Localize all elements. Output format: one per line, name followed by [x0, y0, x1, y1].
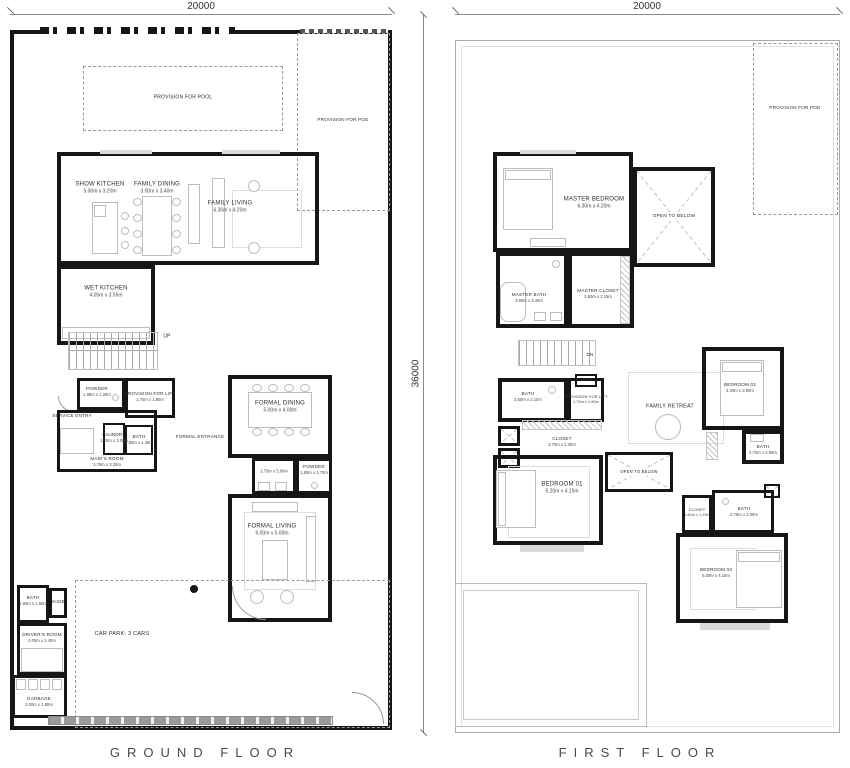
chair-icon: [133, 230, 142, 238]
tv-console-icon: [188, 184, 200, 244]
toilet-icon: [722, 498, 729, 505]
room-dims: 3.70m x 1.30m: [548, 442, 576, 447]
window: [520, 150, 576, 154]
room-dims: 6.30m x 4.20m: [208, 208, 253, 215]
room-dims: 1.80m x 1.25m: [684, 512, 710, 517]
provision-for-pool-label: PROVISION FOR POOL: [154, 95, 213, 102]
coffee-table-icon: [262, 540, 288, 580]
room-label: MASTER BEDROOM: [564, 196, 624, 204]
toilet-icon: [112, 394, 119, 401]
room-dims: 2.00m x 1.60m: [25, 702, 53, 707]
open-to-below-label: OPEN TO BELOW: [620, 469, 658, 475]
family-retreat-label: FAMILY RETREAT: [646, 403, 694, 410]
height-dimension-line: [423, 14, 424, 733]
height-dimension-label: 36000: [411, 354, 422, 394]
pillow-icon: [505, 170, 551, 180]
shower-unit-icon: [498, 426, 520, 446]
room-dims: 5.20m x 4.15m: [541, 489, 582, 496]
car-park-area: [75, 580, 390, 728]
fence-pattern: [40, 27, 235, 34]
provision-for-pod-label: PROVISION FOR POD: [317, 117, 368, 123]
chair-icon: [284, 428, 294, 436]
dimension-tick: [420, 729, 427, 736]
first-width-dimension-label: 20000: [633, 1, 661, 12]
provision-for-pod-label: PROVISION FOR POD: [769, 105, 820, 111]
chair-icon: [172, 230, 181, 238]
sofa-icon: [252, 502, 298, 512]
sink-icon: [534, 312, 546, 321]
bin-icon: [28, 679, 38, 690]
room-dims: 1.55m x 1.45m: [125, 440, 153, 445]
room-dims: 4.00m x 3.90m: [724, 388, 756, 393]
armchair-icon: [248, 180, 260, 192]
bin-icon: [52, 679, 62, 690]
room-dims: 3.80m x 3.40m: [512, 298, 547, 303]
ground-floor-title: GROUND FLOOR: [110, 745, 300, 760]
sink-icon: [550, 312, 562, 321]
room-dims: 3.50m x 2.10m: [514, 397, 542, 402]
gate-icon: [48, 716, 333, 725]
wardrobe-hatch-icon: [620, 256, 630, 324]
chair-icon: [172, 214, 181, 222]
chair-icon: [133, 198, 142, 206]
room-dims: 1.90m x 1.60m: [19, 601, 47, 606]
room-dims: 2.75m x 2.00m: [730, 512, 758, 517]
room-dims: 3.00m x 3.40m: [134, 189, 180, 196]
toilet-icon: [552, 260, 560, 268]
sink-icon: [94, 205, 106, 217]
stairs-dn-label: DN: [586, 352, 593, 358]
balcony-strip: [700, 623, 770, 630]
provision-for-pod-area: [753, 43, 838, 215]
chair-icon: [172, 198, 181, 206]
sink-icon: [258, 482, 270, 491]
room-dims: 2.70m x 2.90m: [749, 450, 777, 455]
sink-icon: [275, 482, 287, 491]
room-dims: 1.75m x 1.90m: [125, 397, 176, 402]
ground-width-dimension-line: [10, 14, 392, 15]
terrace-outline-inner: [463, 590, 639, 720]
room-dims: 1.98m x 1.20m: [83, 392, 111, 397]
dimension-tick: [7, 7, 14, 14]
room-dims: 1.20m x 3.00m: [100, 438, 128, 443]
dimension-tick: [836, 7, 843, 14]
balcony-strip: [520, 545, 584, 552]
table-icon: [655, 414, 681, 440]
armchair-icon: [248, 242, 260, 254]
chair-icon: [268, 384, 278, 392]
first-floor-title: FIRST FLOOR: [559, 745, 722, 760]
chair-icon: [133, 246, 142, 254]
room-dims: 3.75m x 3.20m: [90, 462, 123, 467]
room-dims: 4.05m x 3.55m: [84, 293, 127, 300]
acp-label: ACP: [581, 377, 591, 383]
pillow-icon: [498, 472, 506, 526]
room-label: BEDROOM 01: [541, 481, 582, 489]
open-to-below-label: OPEN TO BELOW: [653, 214, 696, 220]
room-label: SHOW KITCHEN: [75, 181, 124, 189]
pillow-icon: [722, 362, 762, 372]
stairs-up-label: UP: [163, 334, 170, 341]
sink-icon: [548, 386, 556, 394]
rug-icon: [232, 190, 302, 248]
room-dims: 1.75m x 1.80m: [564, 399, 608, 404]
chair-icon: [172, 246, 181, 254]
wardrobe-hatch-icon: [706, 432, 718, 460]
room-label: SHOE: [51, 599, 65, 605]
stairs-rail: [68, 350, 158, 351]
pillow-icon: [738, 552, 780, 562]
room-dims: 1.80m x 1.70m: [300, 470, 328, 475]
room-dims: 2.80m x 2.15m: [577, 294, 618, 299]
dining-table-icon: [142, 196, 172, 256]
wardrobe-hatch-icon: [522, 420, 602, 430]
bin-icon: [40, 679, 50, 690]
dimension-tick: [452, 7, 459, 14]
stool-icon: [121, 212, 129, 220]
room-dims: 6.00m x 5.00m: [248, 531, 297, 538]
chair-icon: [300, 428, 310, 436]
stool-icon: [121, 241, 129, 249]
sofa-icon: [306, 516, 316, 582]
room-dims: 2.00m x 2.40m: [22, 638, 61, 643]
bed-icon: [60, 428, 94, 454]
stairs-icon: [68, 332, 158, 370]
room-dims: 1.75m x 5.00m: [260, 468, 288, 473]
formal-entrance-label: FORMAL ENTRANCE: [176, 434, 225, 440]
dimension-tick: [388, 7, 395, 14]
room-label: FAMILY LIVING: [208, 200, 253, 208]
service-entry-label: SERVICE ENTRY: [52, 413, 91, 419]
bench-icon: [530, 238, 566, 247]
floor-plan-sheet: 20000 PROVISION FOR POOL PROVISION FOR P…: [0, 0, 850, 768]
room-dims: 5.00m x 4.00m: [255, 408, 305, 415]
stairs-icon: [518, 340, 596, 366]
chair-icon: [300, 384, 310, 392]
window: [222, 150, 280, 154]
bed-icon: [21, 648, 63, 672]
bin-icon: [16, 679, 26, 690]
room-label: FORMAL LIVING: [248, 523, 297, 531]
chair-icon: [252, 428, 262, 436]
chair-icon: [133, 214, 142, 222]
toilet-icon: [311, 482, 318, 489]
first-width-dimension-line: [455, 14, 840, 15]
room-label: FAMILY DINING: [134, 181, 180, 189]
stool-icon: [121, 227, 129, 235]
ground-width-dimension-label: 20000: [187, 1, 215, 12]
column-dot-icon: [190, 585, 198, 593]
chair-icon: [284, 384, 294, 392]
chair-icon: [252, 384, 262, 392]
room-dims: 5.00m x 4.10m: [700, 573, 732, 578]
car-park-label: CAR PARK: 3 CARS: [95, 631, 150, 639]
room-dims: 5.00m x 3.20m: [75, 189, 124, 196]
chair-icon: [268, 428, 278, 436]
room-dims: 6.30m x 4.20m: [564, 204, 624, 211]
room-label: WET KITCHEN: [84, 285, 127, 293]
sink-icon: [750, 434, 764, 442]
dimension-tick: [420, 11, 427, 18]
window: [100, 150, 152, 154]
room-label: FORMAL DINING: [255, 400, 305, 408]
